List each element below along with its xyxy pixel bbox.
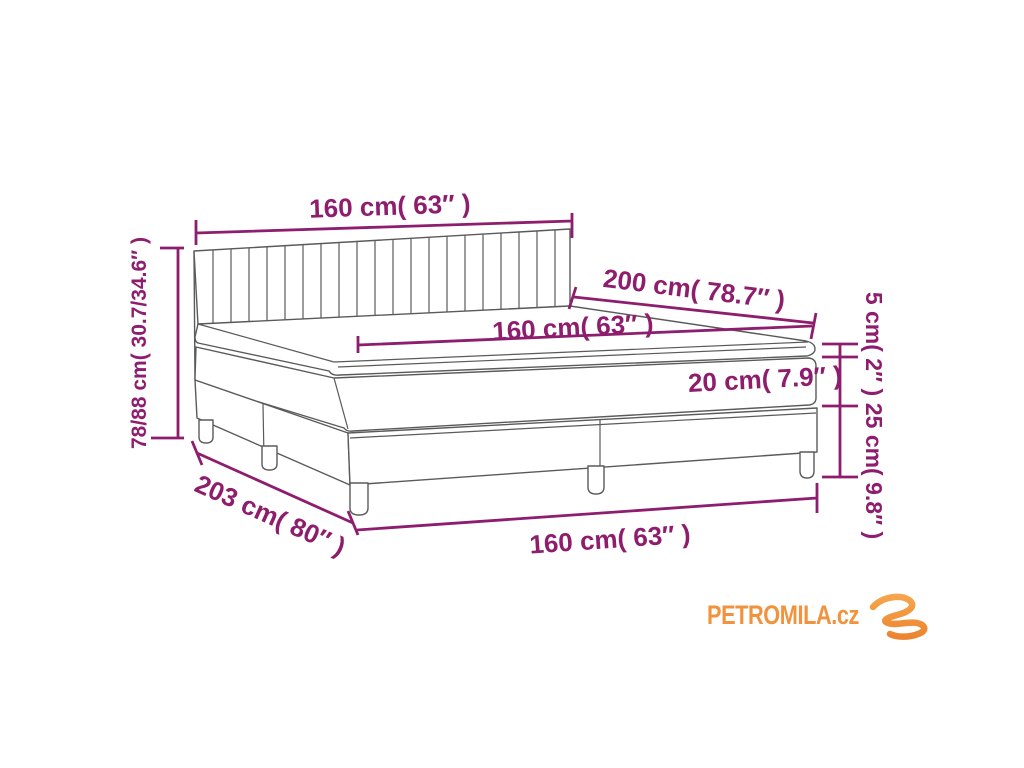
dim-label-base-width: 160 cm( 63″ ) xyxy=(528,518,691,559)
dim-label-total-length: 203 cm( 80″ ) xyxy=(191,469,351,562)
bed-dimension-diagram: 160 cm( 63″ ) 78/88 cm( 30.7/34.6″ ) 200… xyxy=(0,0,1024,768)
leg-2 xyxy=(262,446,277,470)
diagram-canvas: 160 cm( 63″ ) 78/88 cm( 30.7/34.6″ ) 200… xyxy=(0,0,1024,768)
dim-label-base-height: 25 cm( 9.8″ ) xyxy=(861,403,887,539)
leg-3 xyxy=(350,483,368,515)
leg-1 xyxy=(199,420,213,443)
brand-logo-text: PETROMILA.cz xyxy=(707,600,859,630)
dim-total-height: 78/88 cm( 30.7/34.6″ ) xyxy=(128,237,184,449)
dim-label-headboard-width: 160 cm( 63″ ) xyxy=(309,188,471,224)
dim-label-total-height: 78/88 cm( 30.7/34.6″ ) xyxy=(128,237,151,449)
dim-label-topper-height: 5 cm( 2″ ) xyxy=(861,292,887,396)
dim-label-bed-length: 200 cm( 78.7″ ) xyxy=(601,263,786,315)
dim-base-width: 160 cm( 63″ ) xyxy=(357,483,817,560)
brand-swoosh-icon xyxy=(873,597,924,637)
leg-4 xyxy=(588,466,604,494)
brand-logo: PETROMILA.cz xyxy=(707,597,924,637)
dim-right-heights: 5 cm( 2″ ) 25 cm( 9.8″ ) xyxy=(822,292,887,539)
leg-5 xyxy=(800,452,814,478)
